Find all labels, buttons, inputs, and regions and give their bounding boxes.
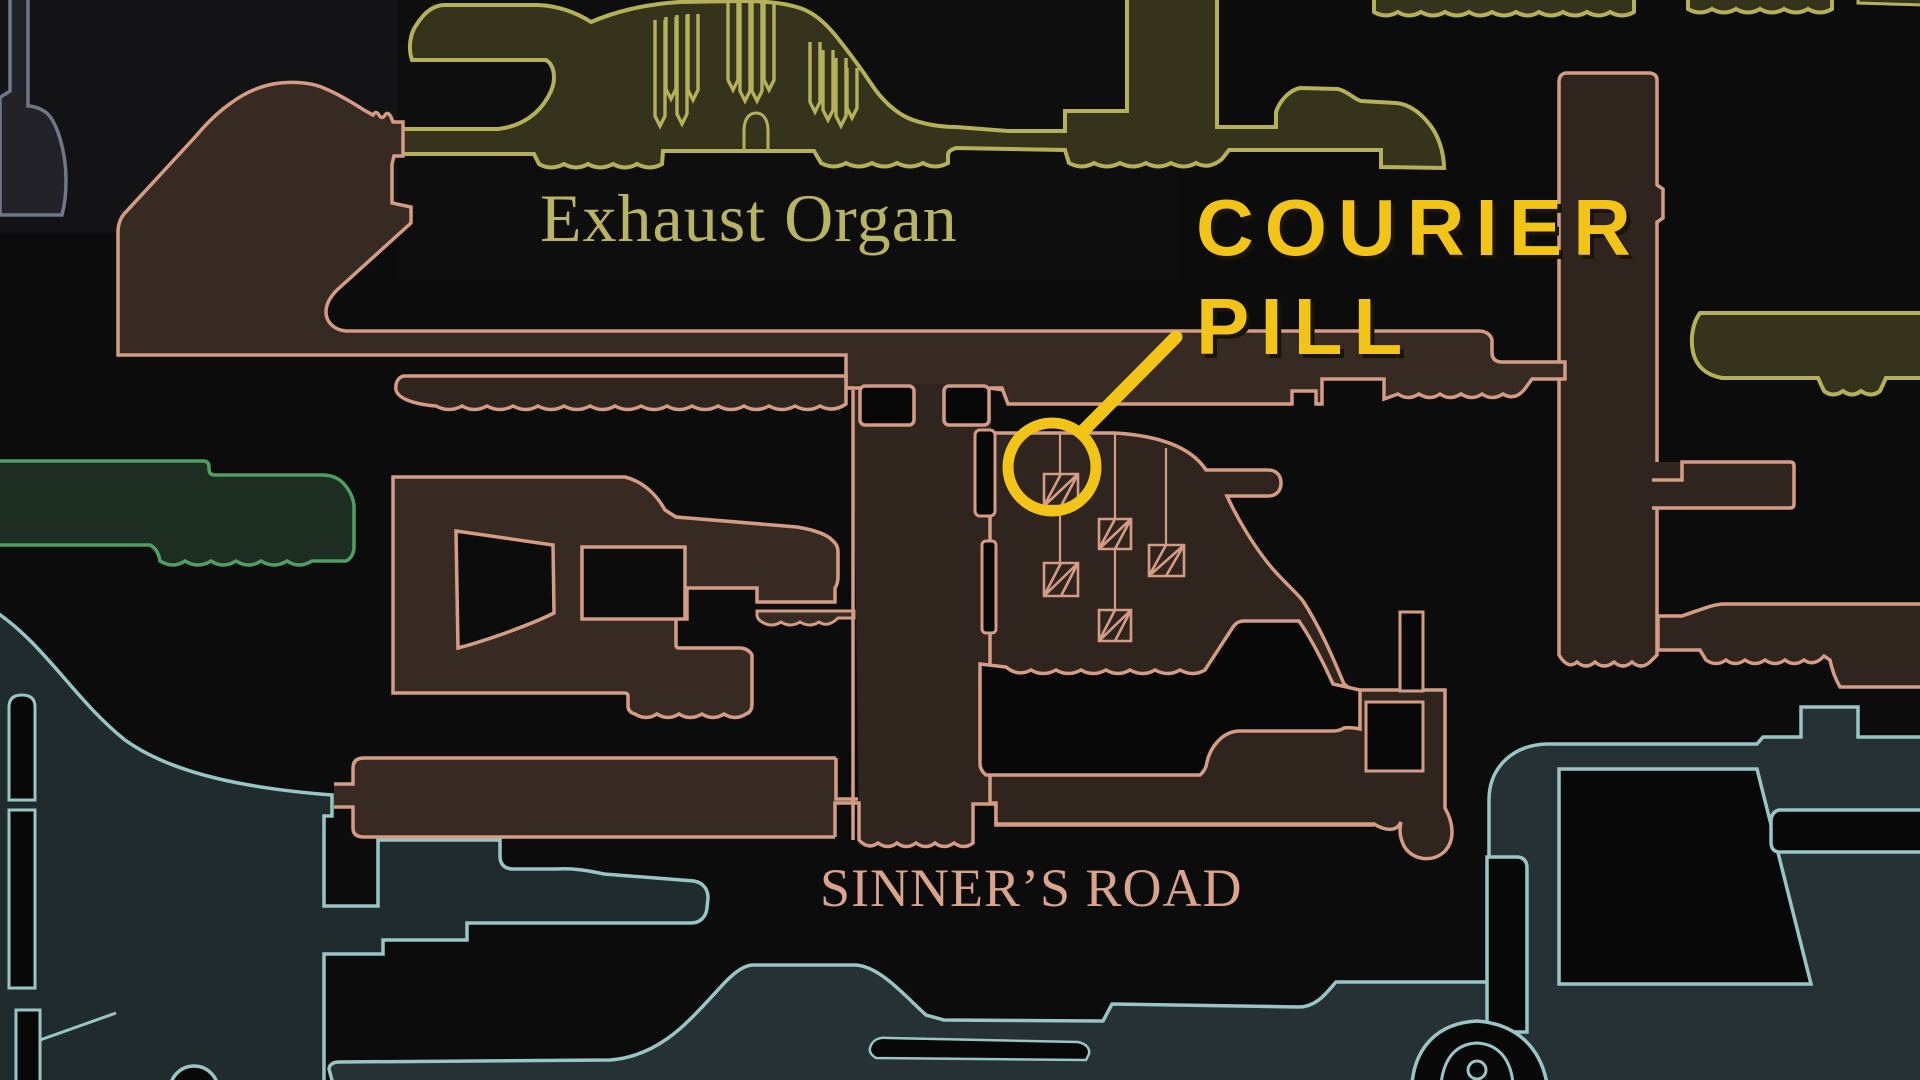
svg-text:PILL: PILL: [1196, 282, 1413, 371]
svg-text:Exhaust Organ: Exhaust Organ: [540, 180, 958, 256]
svg-text:SINNER’S ROAD: SINNER’S ROAD: [820, 858, 1243, 918]
svg-text:COURIER: COURIER: [1196, 183, 1642, 272]
